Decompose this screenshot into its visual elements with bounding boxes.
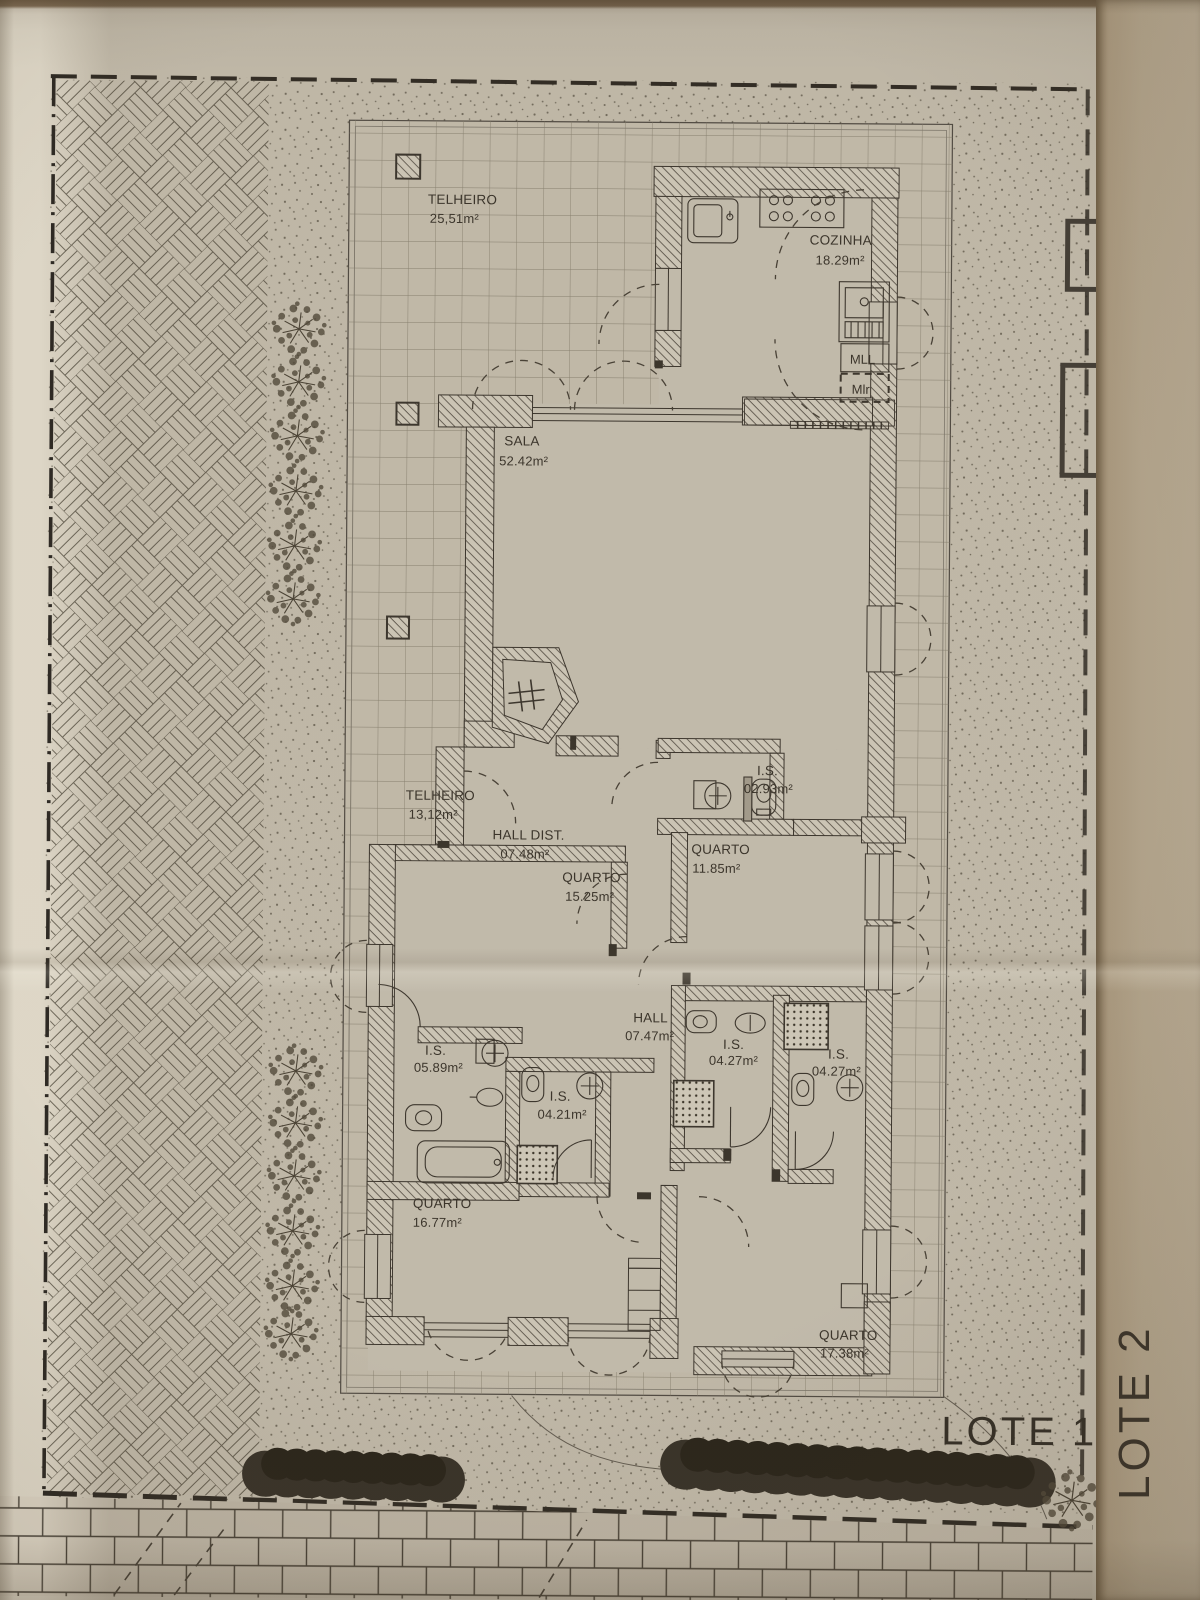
room-label: TELHEIRO xyxy=(428,192,497,207)
room-area: 04.21m² xyxy=(538,1107,588,1122)
room-label: I.S. xyxy=(425,1043,446,1058)
room-label: QUARTO xyxy=(819,1328,878,1343)
room-area: 18.29m² xyxy=(815,252,865,267)
paper-fold-margin: LOTE 2 xyxy=(1096,0,1200,1600)
room-area: 25,51m² xyxy=(430,211,480,226)
site-plan-svg: TELHEIRO 25,51m² COZINHA 18.29m² SALA 52… xyxy=(0,0,1200,1600)
room-area: 04.27m² xyxy=(812,1063,862,1078)
room-area: 15.25m² xyxy=(565,889,615,904)
room-area: 07.47m² xyxy=(625,1028,675,1043)
basketweave-paving xyxy=(47,80,269,1495)
dishwasher-label: MLL xyxy=(850,352,875,367)
room-label: I.S. xyxy=(723,1037,744,1052)
floor-plan-photo: TELHEIRO 25,51m² COZINHA 18.29m² SALA 52… xyxy=(0,0,1200,1600)
hedge-row-left xyxy=(265,1464,455,1480)
room-area: 11.85m² xyxy=(692,861,741,876)
room-label: QUARTO xyxy=(691,842,750,857)
sliding-door-sala xyxy=(532,408,742,422)
shower-icon xyxy=(784,1003,828,1049)
lot-1-label: LOTE 1 xyxy=(941,1409,1097,1454)
hedge-row-right xyxy=(685,1455,1041,1483)
room-area: 04.27m² xyxy=(709,1053,759,1068)
room-area: 13,12m² xyxy=(409,807,459,822)
room-label: TELHEIRO xyxy=(406,788,475,803)
room-label: HALL DIST. xyxy=(492,827,564,843)
room-area: 07.48m² xyxy=(500,846,550,861)
shower-icon xyxy=(673,1081,713,1127)
room-area: 17.38m² xyxy=(820,1346,870,1361)
room-label: QUARTO xyxy=(413,1196,472,1211)
room-label: I.S. xyxy=(757,763,778,778)
room-label: HALL xyxy=(633,1010,668,1025)
shower-icon xyxy=(517,1145,557,1183)
room-label: SALA xyxy=(504,433,539,448)
lot-2-label: LOTE 2 xyxy=(1110,1324,1160,1500)
plan-drawing-wrap: TELHEIRO 25,51m² COZINHA 18.29m² SALA 52… xyxy=(0,0,1200,1600)
room-area: 16.77m² xyxy=(413,1215,463,1230)
washer-label: Mlr xyxy=(852,382,871,397)
room-area: 52.42m² xyxy=(499,453,549,468)
room-label: I.S. xyxy=(828,1047,849,1062)
room-label: I.S. xyxy=(550,1089,571,1104)
room-label: COZINHA xyxy=(810,232,872,247)
window-kitchen-left xyxy=(655,268,681,330)
room-label: QUARTO xyxy=(562,870,621,885)
room-area: 02.93m² xyxy=(744,781,794,796)
room-area: 05.89m² xyxy=(414,1060,464,1075)
